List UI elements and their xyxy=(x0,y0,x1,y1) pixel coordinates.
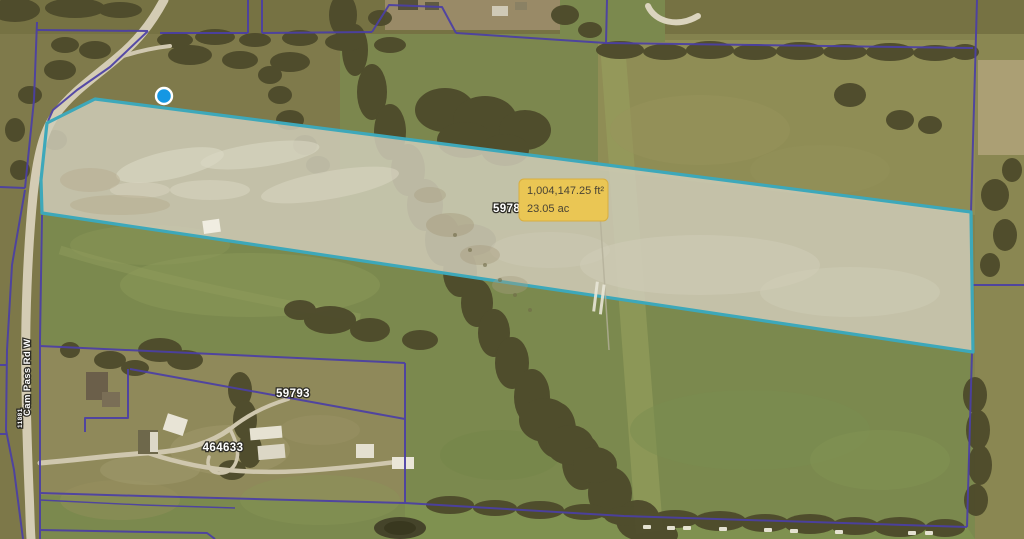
house-number-label: 11881 xyxy=(17,408,24,428)
measurement-marker-icon[interactable] xyxy=(156,88,172,104)
parcel-label-464633: 464633 xyxy=(203,442,244,454)
parcel-label-59793: 59793 xyxy=(276,388,310,400)
barn-in-parcel xyxy=(202,219,221,234)
road-name-label: Cam Pass Rd W xyxy=(22,338,33,416)
map-viewport[interactable]: 5978 59793 464633 Cam Pass Rd W 11881 1,… xyxy=(0,0,1024,539)
area-sqft-value: 1,004,147.25 ft² xyxy=(527,185,604,197)
area-acres-value: 23.05 ac xyxy=(527,203,570,215)
aerial-map-canvas[interactable]: 5978 59793 464633 Cam Pass Rd W 11881 1,… xyxy=(0,0,1024,539)
parcel-label-partial: 5978 xyxy=(493,203,520,215)
measurement-tooltip: 1,004,147.25 ft² 23.05 ac xyxy=(519,179,608,221)
